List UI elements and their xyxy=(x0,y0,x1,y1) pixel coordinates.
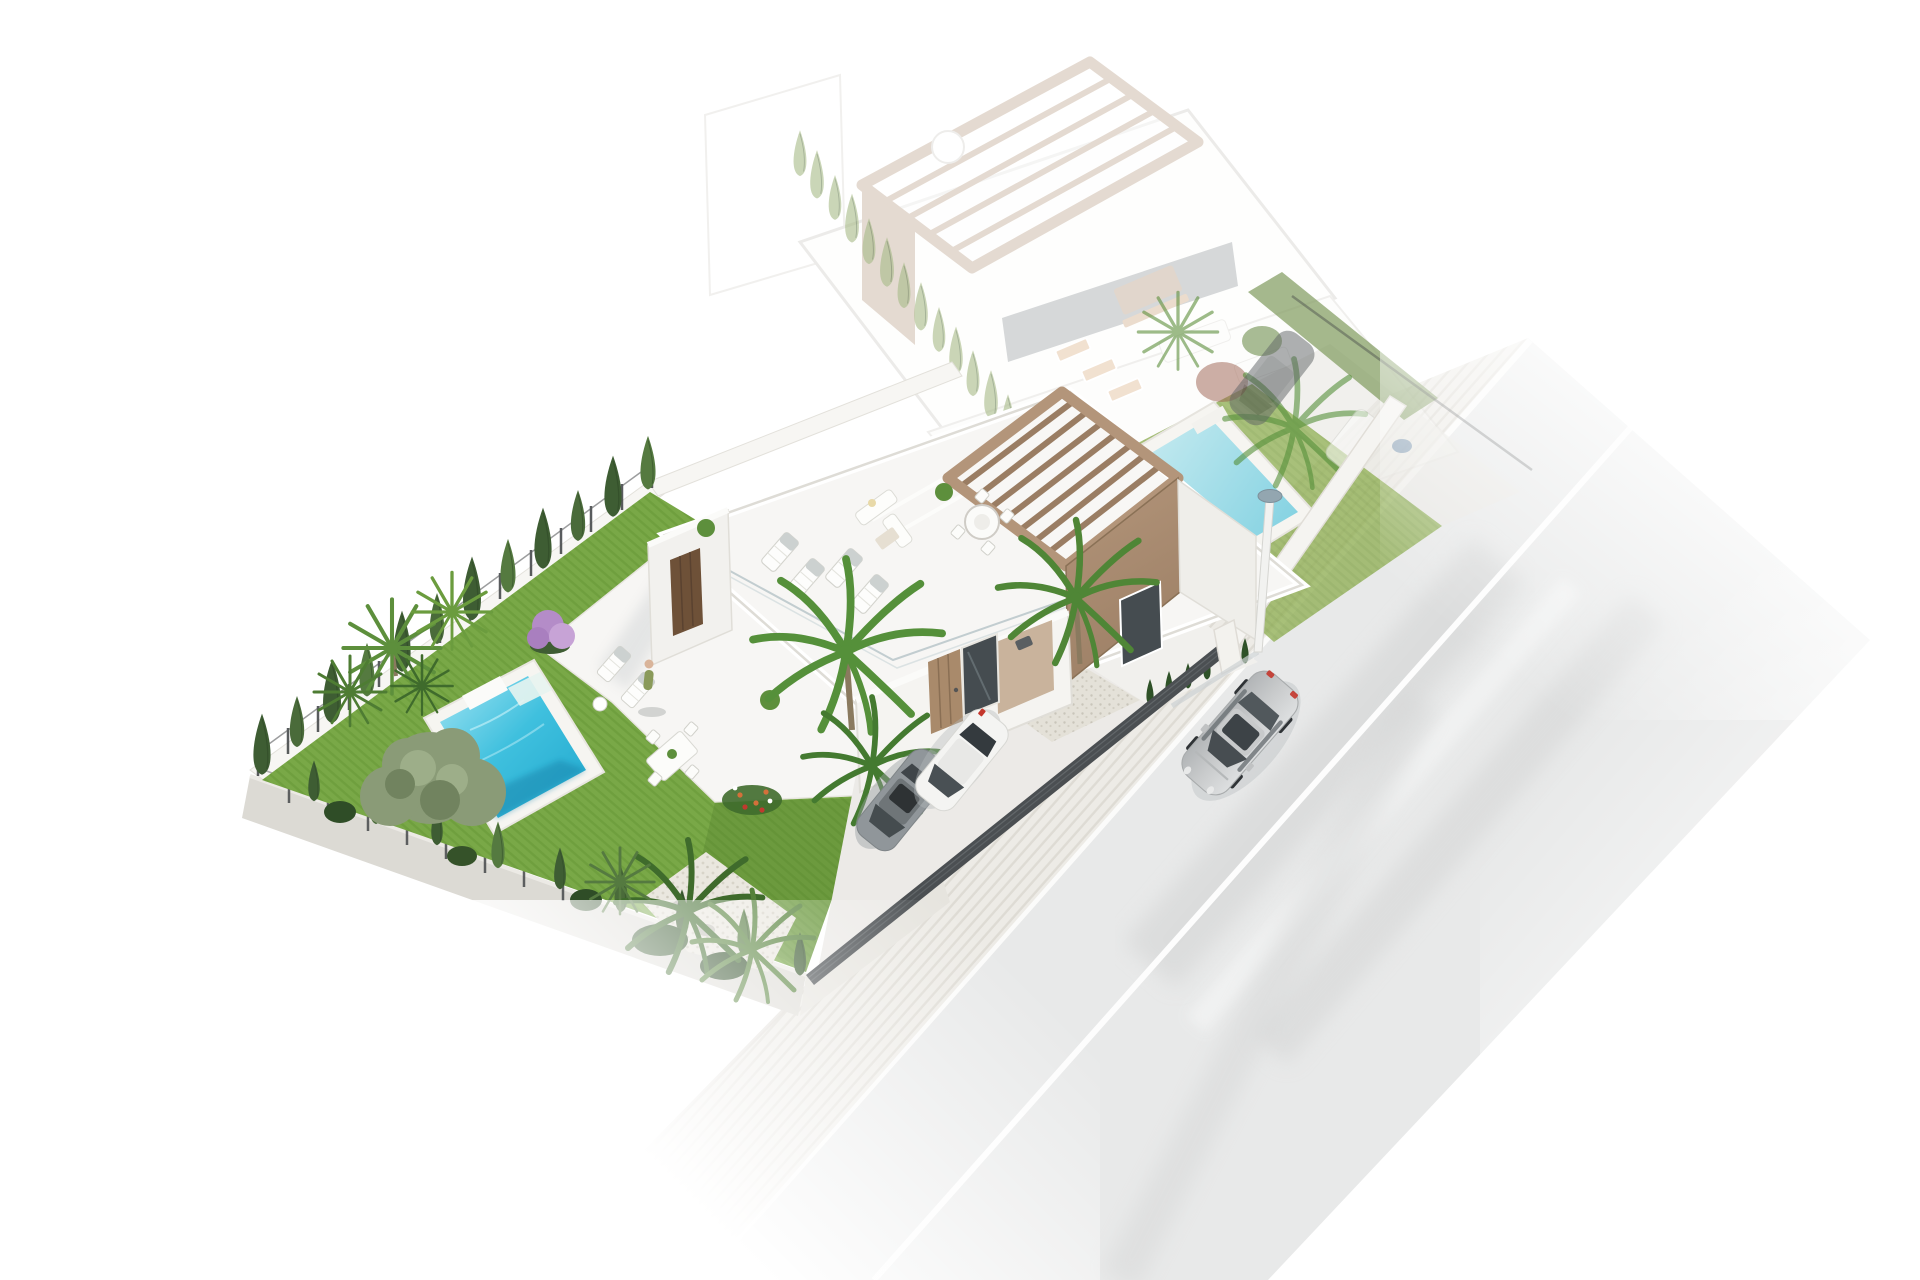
sidewalk-bottom-fade xyxy=(380,900,1100,1280)
lamp-head xyxy=(1258,490,1282,503)
flower-bed xyxy=(722,785,782,815)
entrance-window xyxy=(962,634,999,716)
left-wing-door xyxy=(670,548,703,636)
potted-plant xyxy=(935,483,953,501)
architectural-render xyxy=(0,0,1920,1280)
potted-plant xyxy=(697,519,715,537)
side-table xyxy=(593,697,607,711)
render-canvas xyxy=(0,0,1920,1280)
ghost-roof-table xyxy=(932,131,964,163)
road-right-fade xyxy=(1480,300,1920,1280)
door-handle xyxy=(954,688,958,692)
